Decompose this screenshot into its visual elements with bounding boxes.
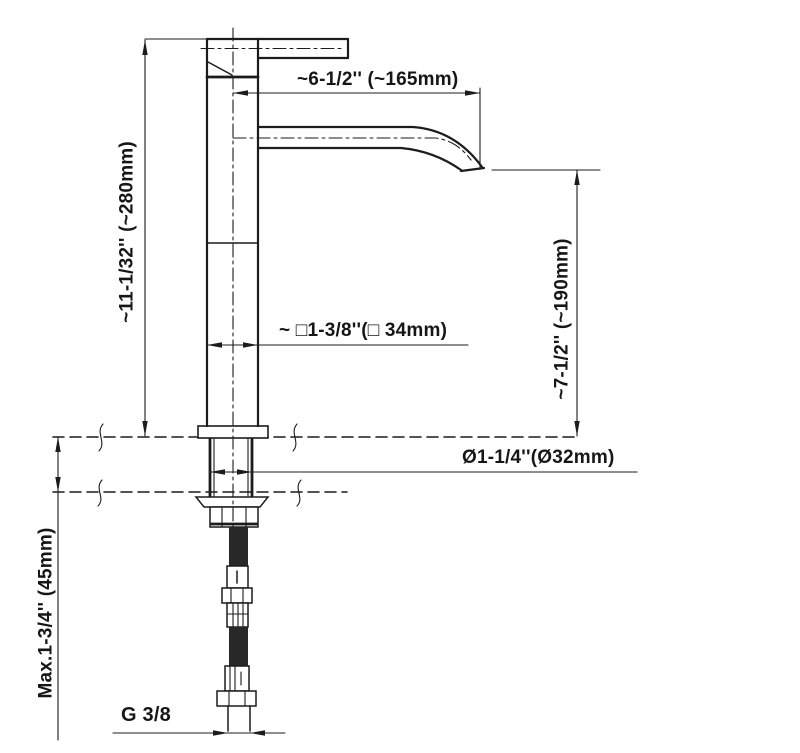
threaded-pipe-end: [228, 706, 250, 731]
label-spout-reach: ~6-1/2'' (~165mm): [297, 70, 458, 89]
arrowhead: [233, 90, 248, 95]
label-total-height: ~11-1/32'' (~280mm): [118, 141, 137, 323]
arrowhead: [213, 730, 228, 735]
dim-thread: [113, 730, 285, 735]
arrowhead: [55, 437, 60, 452]
faucet-spout: [258, 127, 484, 171]
break-mark: [297, 480, 301, 506]
technical-drawing: ~6-1/2'' (~165mm) ~11-1/32'' (~280mm) ~7…: [0, 0, 800, 753]
hex-connector: [222, 588, 252, 603]
arrowhead: [207, 342, 222, 347]
supply-hose: [217, 527, 256, 731]
braided-hose-lower: [229, 627, 248, 666]
label-body-width: ~ □1-3/8''(□ 34mm): [279, 321, 447, 340]
label-deck-thickness: Max.1-3/4'' (45mm): [37, 527, 56, 698]
label-hole-diameter: Ø1-1/4''(Ø32mm): [462, 448, 614, 467]
crimp-sleeve: [225, 666, 249, 691]
mounting-hardware: [196, 438, 268, 527]
arrowhead: [574, 170, 579, 185]
label-thread-size: G 3/8: [121, 705, 171, 725]
arrowhead: [243, 342, 258, 347]
centerlines: [201, 28, 471, 528]
spout-outlet: [461, 168, 484, 171]
arrowhead: [237, 469, 252, 474]
arrowhead: [142, 421, 147, 436]
label-spout-height: ~7-1/2'' (~190mm): [553, 238, 572, 399]
arrowhead: [574, 421, 579, 436]
dim-hole-diameter: [210, 469, 637, 474]
dim-spout-height: [492, 170, 600, 436]
break-mark: [99, 424, 103, 451]
break-mark: [98, 480, 102, 506]
mounting-washer: [196, 497, 268, 507]
dim-body-width: [207, 342, 468, 347]
braided-hose-upper: [229, 527, 248, 566]
faucet-dimension-diagram: [0, 0, 800, 753]
dimensions: [55, 39, 637, 740]
arrowhead: [210, 469, 225, 474]
arrowhead: [465, 90, 480, 95]
faucet: [198, 39, 484, 438]
lever-tilt-line: [208, 62, 232, 75]
spout-bottom-line: [258, 148, 461, 170]
connection-hex-nut: [217, 691, 256, 706]
arrowhead: [250, 730, 265, 735]
arrowhead: [55, 477, 60, 492]
dim-total-height: [142, 40, 147, 436]
arrowhead: [142, 40, 147, 55]
